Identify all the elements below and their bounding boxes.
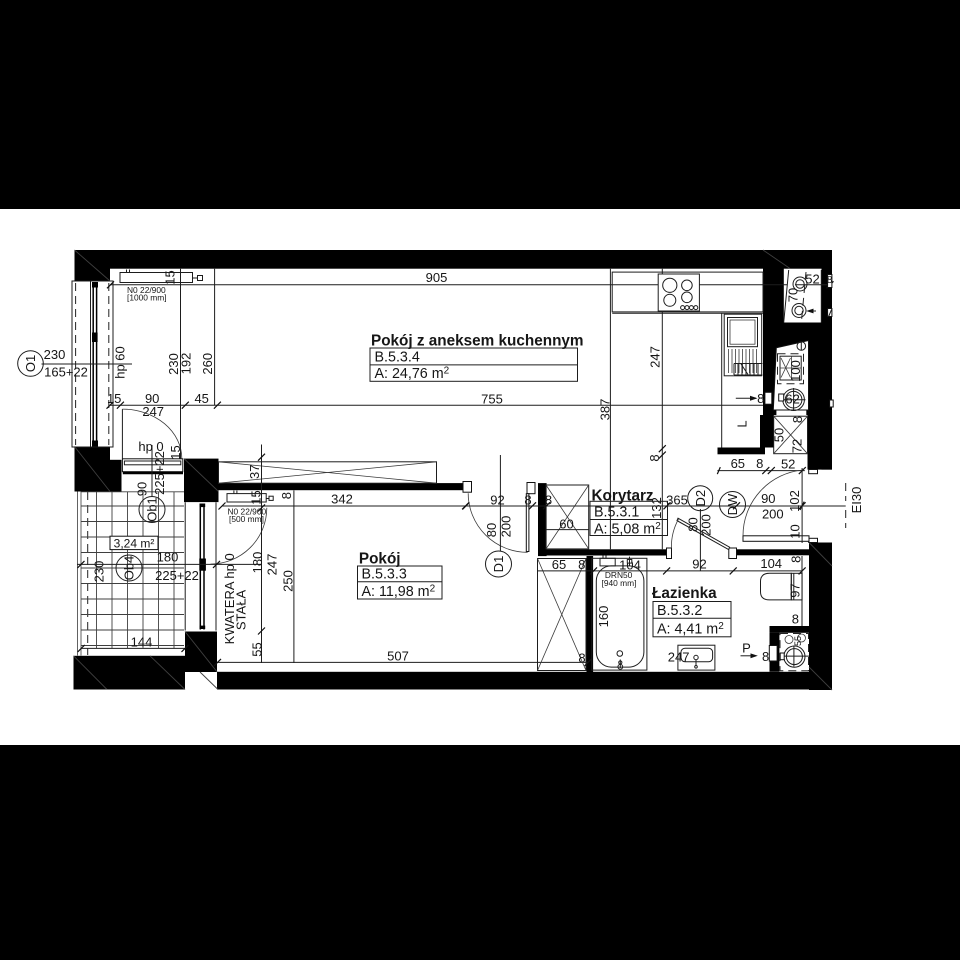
svg-text:60: 60: [559, 516, 573, 531]
svg-text:102: 102: [787, 490, 802, 512]
svg-text:225+22: 225+22: [152, 451, 167, 495]
svg-text:8: 8: [545, 492, 552, 507]
svg-text:A: 4,41 m2: A: 4,41 m2: [657, 621, 724, 637]
svg-text:8: 8: [578, 557, 585, 572]
svg-text:507: 507: [387, 649, 409, 664]
svg-text:STAŁA: STAŁA: [234, 590, 249, 631]
svg-text:55: 55: [793, 636, 803, 646]
svg-text:72: 72: [790, 439, 805, 453]
svg-text:A: 24,76 m2: A: 24,76 m2: [375, 365, 450, 381]
svg-text:260: 260: [200, 353, 215, 375]
svg-text:3,24 m²: 3,24 m²: [114, 537, 155, 551]
svg-text:hp 0: hp 0: [138, 439, 163, 454]
svg-text:37: 37: [247, 465, 262, 479]
svg-text:Pokój: Pokój: [359, 550, 401, 567]
svg-text:905: 905: [426, 270, 448, 285]
svg-text:A: 5,08 m2: A: 5,08 m2: [594, 521, 661, 537]
svg-text:8: 8: [524, 492, 531, 507]
svg-text:247: 247: [648, 346, 663, 368]
svg-text:15: 15: [163, 270, 178, 284]
svg-text:D2: D2: [693, 490, 708, 507]
svg-text:62: 62: [785, 392, 799, 407]
svg-text:50: 50: [772, 428, 787, 442]
svg-text:92: 92: [692, 556, 706, 571]
svg-text:52: 52: [805, 271, 819, 286]
svg-text:Ob1: Ob1: [145, 497, 160, 522]
svg-text:8: 8: [762, 649, 769, 664]
svg-text:52: 52: [781, 456, 795, 471]
svg-text:180: 180: [157, 550, 179, 565]
svg-text:A: 11,98 m2: A: 11,98 m2: [362, 583, 436, 599]
svg-text:92: 92: [490, 492, 504, 507]
svg-text:Pokój z aneksem kuchennym: Pokój z aneksem kuchennym: [371, 332, 584, 349]
svg-text:B.5.3.3: B.5.3.3: [362, 567, 407, 583]
svg-text:755: 755: [481, 392, 503, 407]
svg-text:90: 90: [135, 482, 150, 496]
svg-text:8: 8: [790, 416, 805, 423]
svg-text:55: 55: [250, 642, 265, 656]
svg-text:P: P: [742, 640, 751, 655]
svg-text:[500 mm]: [500 mm]: [229, 514, 264, 524]
svg-text:100: 100: [788, 360, 803, 382]
svg-text:8: 8: [578, 651, 585, 666]
svg-text:EI30: EI30: [849, 487, 864, 514]
svg-text:DW: DW: [725, 493, 740, 515]
svg-text:hp 60: hp 60: [113, 346, 128, 379]
svg-text:200: 200: [762, 507, 784, 522]
svg-text:192: 192: [179, 353, 194, 375]
svg-text:D1: D1: [491, 556, 506, 573]
svg-text:144: 144: [131, 635, 153, 650]
svg-text:65: 65: [731, 456, 745, 471]
svg-text:8: 8: [756, 456, 763, 471]
svg-text:90: 90: [761, 491, 775, 506]
svg-text:Ob4: Ob4: [122, 556, 137, 581]
svg-text:8: 8: [792, 611, 799, 626]
svg-text:B.5.3.2: B.5.3.2: [657, 603, 702, 619]
svg-text:8: 8: [647, 454, 662, 461]
svg-text:B.5.3.1: B.5.3.1: [594, 504, 639, 520]
svg-text:L: L: [735, 420, 750, 427]
svg-text:8: 8: [757, 391, 764, 406]
svg-text:[1000 mm]: [1000 mm]: [127, 292, 167, 302]
svg-text:104: 104: [760, 556, 782, 571]
svg-text:250: 250: [281, 570, 296, 592]
svg-text:O1: O1: [23, 355, 38, 372]
svg-text:180: 180: [250, 552, 265, 574]
svg-text:15: 15: [107, 391, 121, 406]
svg-text:8: 8: [279, 492, 294, 499]
svg-text:65: 65: [552, 557, 566, 572]
svg-text:Łazienka: Łazienka: [652, 585, 717, 602]
svg-text:365: 365: [666, 493, 688, 508]
svg-text:342: 342: [331, 492, 353, 507]
svg-text:247: 247: [265, 554, 280, 576]
svg-text:8: 8: [827, 275, 833, 286]
svg-text:165+22: 165+22: [44, 365, 88, 380]
svg-text:247: 247: [142, 404, 164, 419]
svg-text:10: 10: [788, 524, 803, 538]
svg-text:225+22: 225+22: [155, 568, 199, 583]
svg-text:B.5.3.4: B.5.3.4: [375, 349, 420, 365]
svg-text:45: 45: [194, 391, 208, 406]
svg-text:230: 230: [44, 347, 66, 362]
svg-text:247: 247: [668, 649, 690, 664]
svg-text:97: 97: [788, 583, 803, 597]
svg-text:[940 mm]: [940 mm]: [602, 578, 637, 588]
svg-text:160: 160: [596, 606, 611, 628]
svg-text:8: 8: [789, 556, 804, 563]
svg-text:80: 80: [484, 523, 499, 537]
svg-text:200: 200: [499, 516, 514, 538]
svg-text:70: 70: [786, 288, 801, 302]
